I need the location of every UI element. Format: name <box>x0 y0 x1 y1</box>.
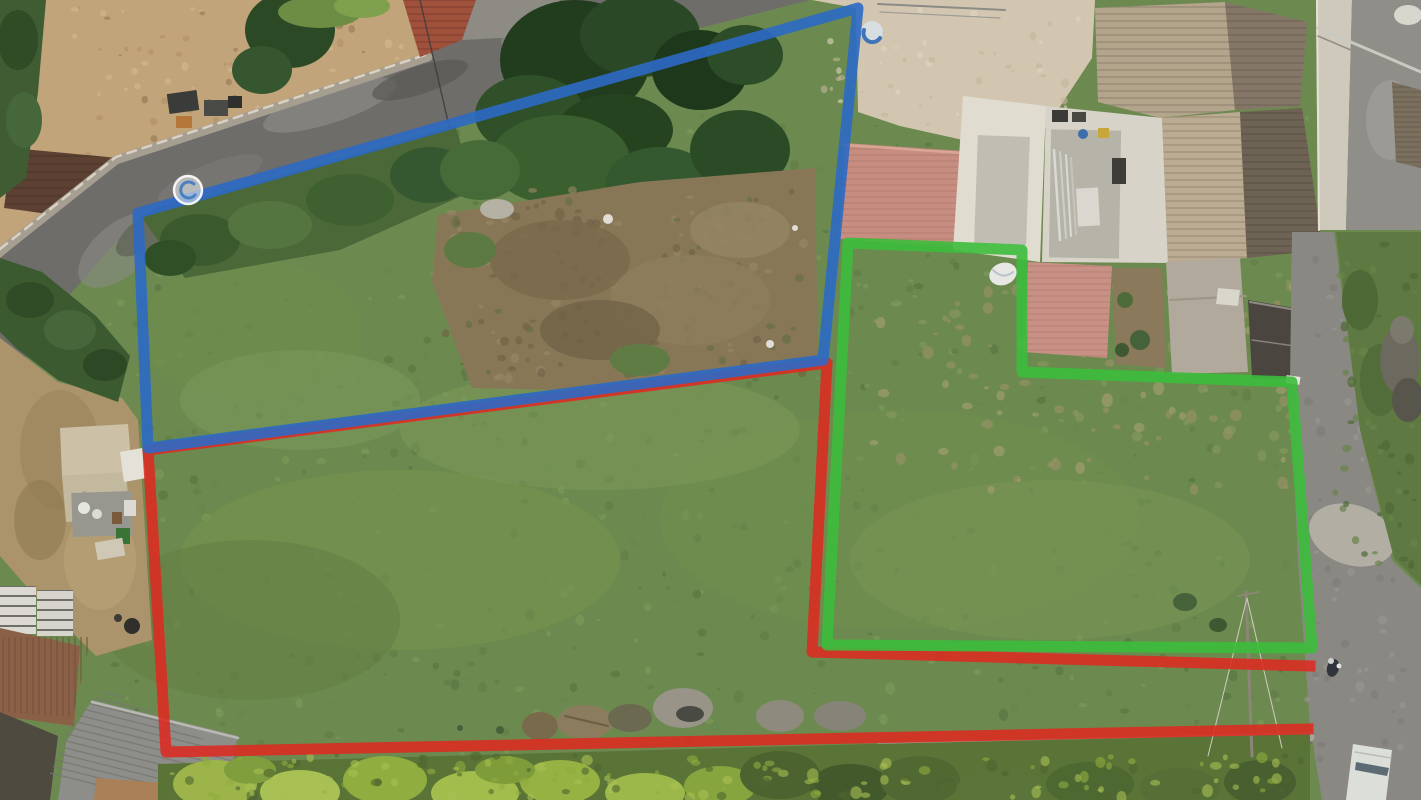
patio-yellow-box <box>1098 128 1109 138</box>
white-debris-1 <box>603 214 613 224</box>
green-parcel-bush-1 <box>1173 593 1197 611</box>
white-tarp <box>120 448 146 482</box>
rubble-pile-3 <box>814 701 866 731</box>
person-arm-item <box>1337 664 1342 669</box>
hedge-ld-blob-2 <box>44 310 96 350</box>
garden-green-1 <box>1117 292 1133 308</box>
hedge-ld-blob-1 <box>6 282 54 318</box>
terrace-concrete <box>1166 258 1248 374</box>
brush-mottle-1 <box>490 220 630 300</box>
patio-white-table <box>1076 187 1100 226</box>
old-wheel <box>124 618 140 634</box>
dirt-strip-mottle-3 <box>14 480 66 560</box>
small-dark-item <box>114 614 122 622</box>
field-streak-4 <box>850 480 1250 640</box>
tree-cluster-1b <box>232 46 292 94</box>
hedge-ul-blob-2 <box>6 92 42 148</box>
brush-mottle-4 <box>690 202 790 258</box>
white-debris-3 <box>766 340 774 348</box>
brush-green-tuft-2 <box>610 344 670 376</box>
hedge-blob-2 <box>228 201 312 249</box>
trailer-white-bag <box>124 500 136 516</box>
road-white-patch <box>1394 5 1421 25</box>
rubble-pile-2 <box>756 700 804 732</box>
concrete-slab-1 <box>60 424 132 476</box>
trailer-brown-item <box>112 512 122 524</box>
photographer-watermark <box>174 176 202 204</box>
patio-dark-bin-2 <box>1072 112 1086 122</box>
patio-grill <box>1112 158 1126 184</box>
aerial-photo-stage <box>0 0 1421 800</box>
white-debris-2 <box>792 225 798 231</box>
patio-dark-bin-1 <box>1052 110 1068 122</box>
trailer-bucket-1 <box>78 502 90 514</box>
trailer-bucket-2 <box>92 509 102 519</box>
rubble-pile-1-dark <box>676 706 704 722</box>
yard-junk-orange <box>176 116 192 128</box>
rubble-patch-3 <box>1390 316 1414 344</box>
canopy-in-plot-4 <box>440 140 520 200</box>
yard-junk-3 <box>228 96 242 108</box>
brush-green-tuft-1 <box>444 232 496 268</box>
aerial-drone-photo <box>0 0 1421 800</box>
patio-blue-bin <box>1078 129 1088 139</box>
field-dark-spot-2 <box>457 725 463 731</box>
yard-junk-1 <box>167 90 199 114</box>
pink-roof-1 <box>839 143 963 247</box>
dry-bush-pile <box>608 704 652 732</box>
white-step <box>1216 288 1240 306</box>
hedge-ld-blob-3 <box>83 349 127 381</box>
white-wall-inner <box>974 135 1030 245</box>
verge-weed-1 <box>1342 270 1378 330</box>
person-head <box>1328 658 1334 664</box>
yard-junk-2 <box>204 100 228 116</box>
wood-pile-2 <box>557 705 613 739</box>
green-parcel-bush-2 <box>1209 618 1227 632</box>
house-roof-A-left <box>1095 2 1235 118</box>
wood-pile-1 <box>522 712 558 740</box>
field-dark-spot-1 <box>496 726 504 734</box>
corrugated-roof-right <box>1392 82 1421 168</box>
garden-green-3 <box>1115 343 1129 357</box>
hedge-blob-3 <box>306 174 394 226</box>
hedge-blob-5 <box>144 240 196 276</box>
garden-green-2 <box>1130 330 1150 350</box>
gravel-patch <box>480 199 514 219</box>
